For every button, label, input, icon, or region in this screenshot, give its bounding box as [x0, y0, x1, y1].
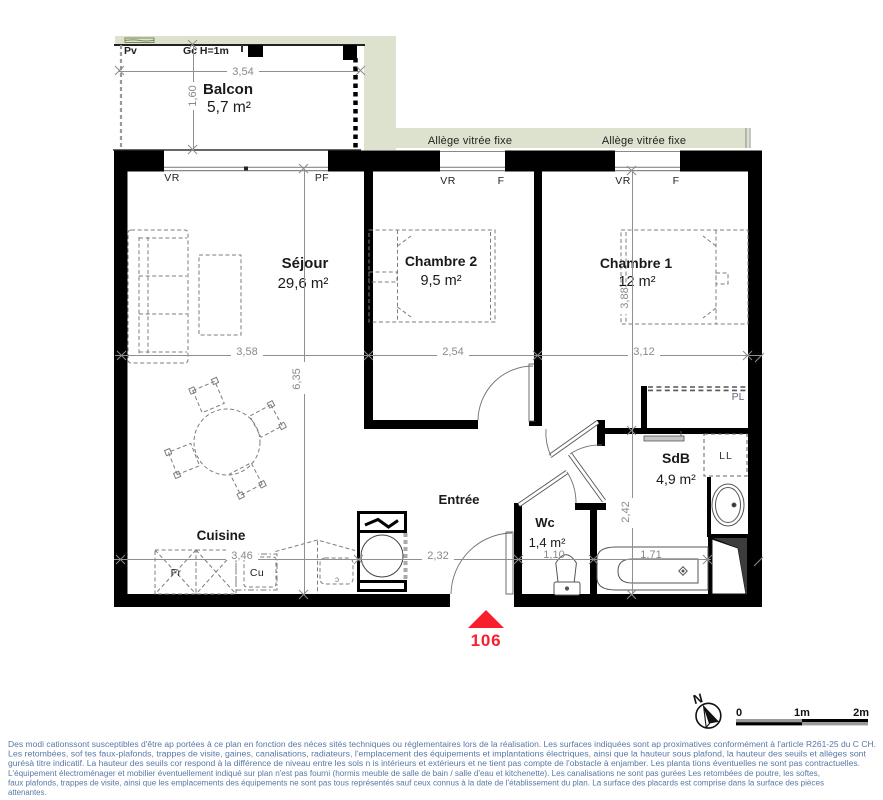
svg-text:SdB: SdB	[662, 450, 690, 466]
svg-text:3,46: 3,46	[231, 550, 252, 562]
svg-text:PL: PL	[732, 391, 745, 403]
svg-text:attenantes.: attenantes.	[8, 788, 47, 797]
svg-text:ɔ: ɔ	[335, 575, 339, 584]
svg-text:29,6 m²: 29,6 m²	[278, 275, 329, 292]
svg-text:VR: VR	[164, 172, 179, 184]
svg-text:6,35: 6,35	[291, 368, 303, 389]
svg-text:Pv: Pv	[124, 45, 137, 57]
svg-text:Chambre 1: Chambre 1	[600, 255, 673, 271]
svg-text:1,60: 1,60	[187, 85, 199, 106]
svg-text:faux plafonds, trappes de visi: faux plafonds, trappes de visite, ainsi …	[8, 778, 824, 787]
svg-text:Chambre 2: Chambre 2	[405, 253, 478, 269]
svg-text:9,5 m²: 9,5 m²	[420, 273, 461, 289]
svg-text:2,32: 2,32	[427, 550, 448, 562]
svg-text:2m: 2m	[853, 707, 869, 719]
svg-text:2,42: 2,42	[620, 501, 632, 522]
svg-text:Cuisine: Cuisine	[197, 528, 246, 543]
svg-text:Cu: Cu	[250, 567, 264, 579]
svg-text:4,9 m²: 4,9 m²	[656, 471, 696, 487]
svg-text:VR: VR	[615, 175, 630, 187]
svg-text:1,4 m²: 1,4 m²	[529, 535, 567, 550]
svg-text:3,12: 3,12	[633, 346, 654, 358]
svg-text:Entrée: Entrée	[438, 492, 479, 507]
svg-text:gurésà titre indicatif. La hau: gurésà titre indicatif. La hauteur des s…	[8, 759, 860, 768]
svg-text:3,58: 3,58	[236, 346, 257, 358]
svg-text:F: F	[673, 175, 680, 187]
svg-text:Les retombées, sof tes fau: Les retombées, sof tes faux-plafonds, tr…	[8, 750, 867, 759]
svg-text:Wc: Wc	[535, 515, 555, 530]
svg-text:3,88: 3,88	[619, 287, 631, 308]
svg-text:LL: LL	[719, 450, 733, 462]
svg-text:0: 0	[736, 707, 742, 719]
svg-text:VR: VR	[440, 175, 455, 187]
svg-text:1,71: 1,71	[640, 549, 661, 561]
svg-text:PF: PF	[315, 172, 329, 184]
svg-text:Allège vitrée fixe: Allège vitrée fixe	[428, 135, 512, 147]
svg-text:3,54: 3,54	[232, 66, 253, 78]
svg-text:Des modi cationssont susceptib: Des modi cationssont susceptibles d'être…	[8, 740, 876, 749]
svg-text:Balcon: Balcon	[203, 81, 253, 98]
svg-text:F: F	[498, 175, 505, 187]
svg-text:1,10: 1,10	[543, 549, 564, 561]
svg-text:Allège vitrée fixe: Allège vitrée fixe	[602, 135, 686, 147]
svg-text:1m: 1m	[794, 707, 810, 719]
svg-text:106: 106	[471, 631, 502, 650]
svg-text:2,54: 2,54	[442, 346, 463, 358]
svg-text:Fr: Fr	[171, 567, 182, 579]
svg-text:Séjour: Séjour	[282, 255, 329, 272]
svg-text:L'équipement électroménager et: L'équipement électroménager et mobilier …	[8, 769, 820, 778]
svg-text:5,7 m²: 5,7 m²	[207, 99, 251, 116]
